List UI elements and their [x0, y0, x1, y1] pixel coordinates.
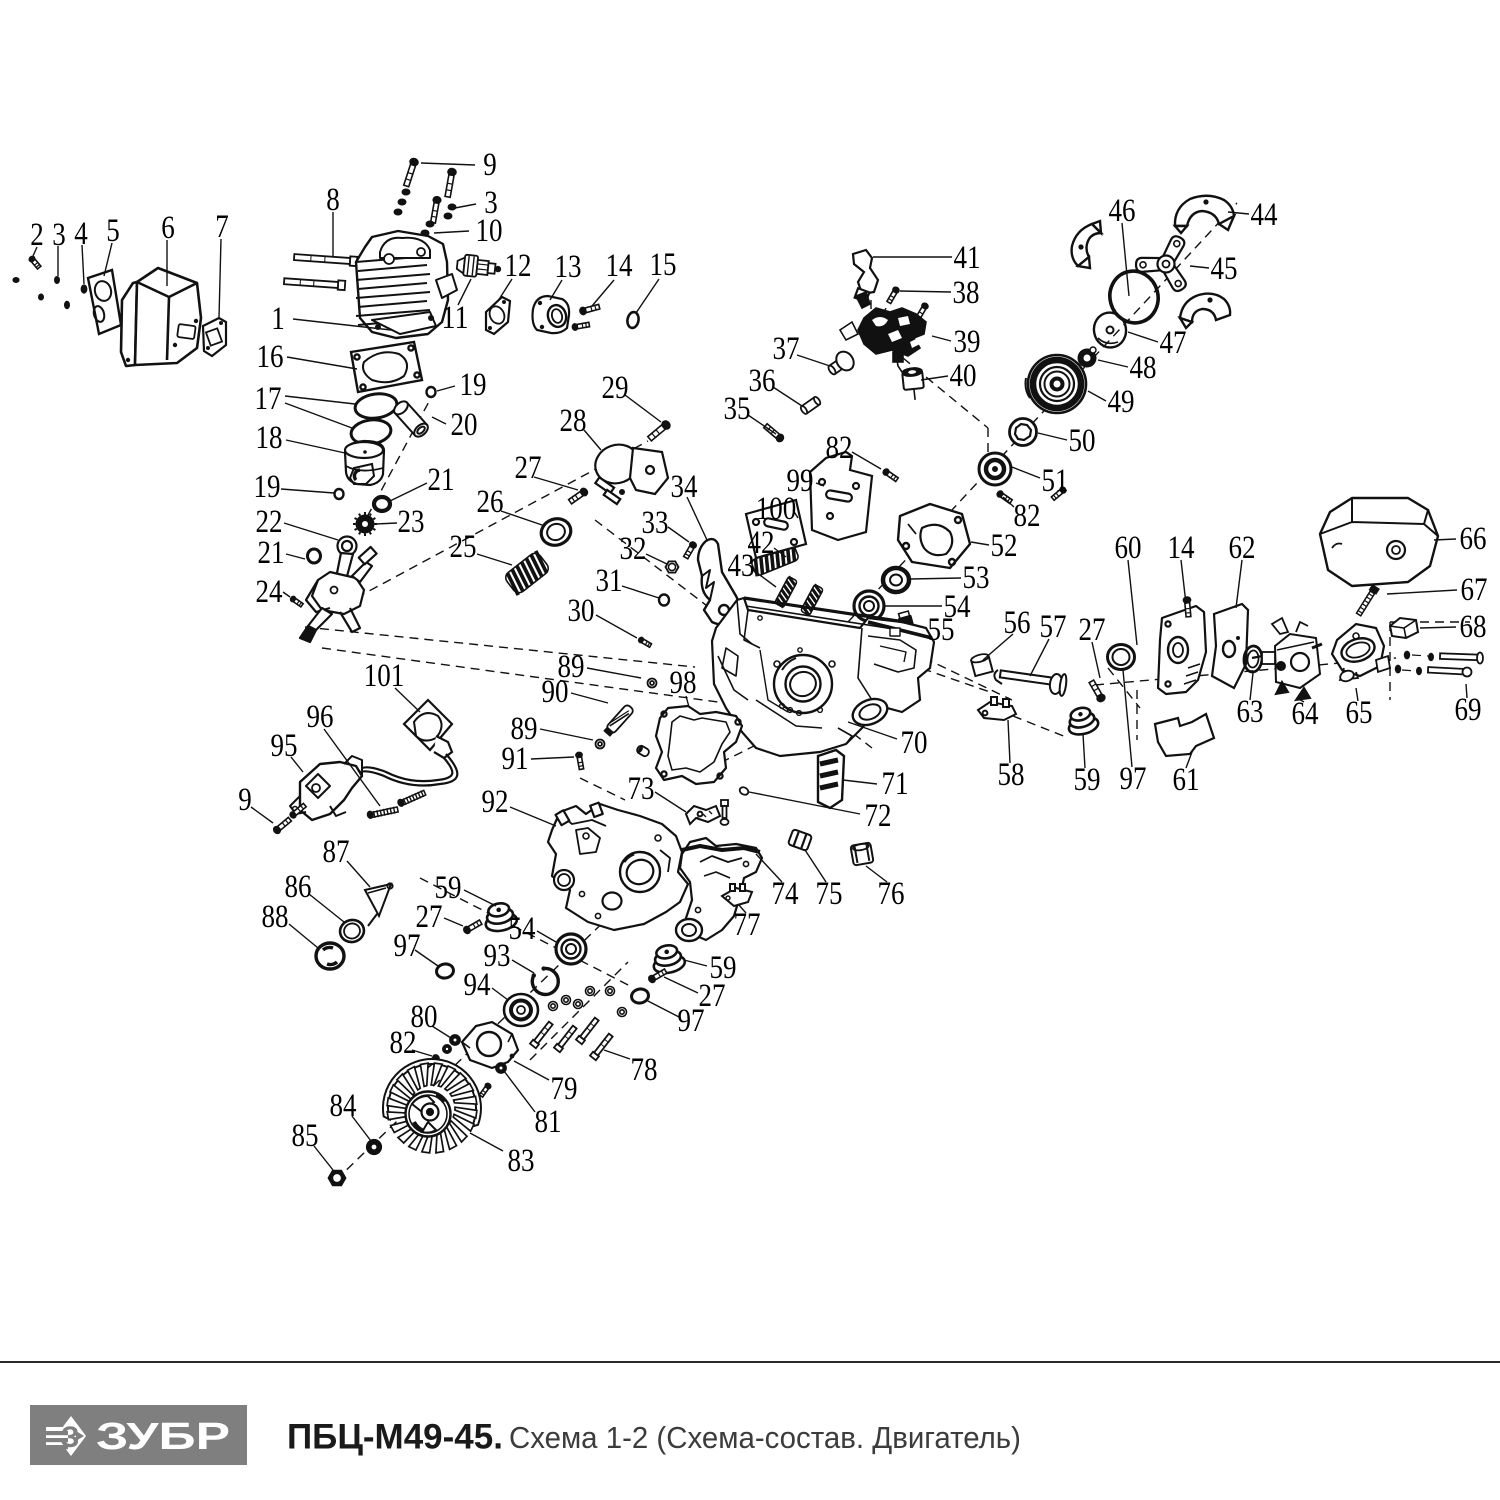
- svg-text:27: 27: [515, 450, 542, 486]
- svg-text:82: 82: [1014, 498, 1041, 534]
- svg-text:92: 92: [482, 784, 509, 820]
- svg-text:71: 71: [882, 766, 909, 802]
- svg-text:14: 14: [606, 248, 633, 284]
- svg-text:5: 5: [106, 213, 120, 249]
- svg-text:7: 7: [215, 209, 229, 245]
- svg-text:39: 39: [954, 324, 981, 360]
- svg-text:48: 48: [1130, 350, 1157, 386]
- svg-text:45: 45: [1211, 251, 1238, 287]
- svg-text:35: 35: [724, 391, 751, 427]
- svg-text:40: 40: [950, 358, 977, 394]
- svg-text:4: 4: [74, 216, 88, 252]
- svg-text:87: 87: [323, 834, 350, 870]
- svg-text:8: 8: [326, 182, 340, 218]
- svg-text:56: 56: [1004, 605, 1031, 641]
- svg-text:70: 70: [901, 725, 928, 761]
- svg-text:27: 27: [699, 978, 726, 1014]
- svg-text:60: 60: [1115, 530, 1142, 566]
- svg-text:54: 54: [509, 911, 536, 947]
- svg-text:97: 97: [1120, 761, 1147, 797]
- svg-text:88: 88: [262, 899, 289, 935]
- svg-text:19: 19: [460, 367, 487, 403]
- svg-text:69: 69: [1455, 692, 1482, 728]
- svg-text:38: 38: [953, 275, 980, 311]
- svg-text:14: 14: [1168, 530, 1195, 566]
- svg-text:77: 77: [734, 907, 761, 943]
- svg-text:12: 12: [505, 248, 532, 284]
- svg-text:31: 31: [596, 563, 623, 599]
- svg-text:65: 65: [1346, 695, 1373, 731]
- svg-text:50: 50: [1069, 423, 1096, 459]
- svg-text:33: 33: [642, 505, 669, 541]
- svg-text:49: 49: [1108, 384, 1135, 420]
- svg-text:51: 51: [1042, 463, 1069, 499]
- svg-text:23: 23: [398, 504, 425, 540]
- svg-text:1: 1: [271, 301, 285, 337]
- svg-text:15: 15: [650, 247, 677, 283]
- svg-text:27: 27: [416, 899, 443, 935]
- svg-text:68: 68: [1460, 609, 1487, 645]
- svg-text:18: 18: [256, 420, 283, 456]
- svg-text:10: 10: [476, 213, 503, 249]
- svg-text:62: 62: [1229, 530, 1256, 566]
- svg-text:74: 74: [772, 876, 799, 912]
- svg-text:ЗУБР: ЗУБР: [96, 1416, 230, 1458]
- svg-text:20: 20: [451, 407, 478, 443]
- svg-text:46: 46: [1109, 193, 1136, 229]
- svg-text:67: 67: [1461, 572, 1488, 608]
- svg-text:61: 61: [1173, 762, 1200, 798]
- svg-text:98: 98: [670, 665, 697, 701]
- svg-text:83: 83: [508, 1143, 535, 1179]
- svg-text:9: 9: [238, 782, 252, 818]
- svg-text:84: 84: [330, 1088, 357, 1124]
- svg-text:78: 78: [631, 1052, 658, 1088]
- svg-text:79: 79: [551, 1071, 578, 1107]
- svg-text:59: 59: [1074, 762, 1101, 798]
- svg-text:57: 57: [1040, 609, 1067, 645]
- svg-text:82: 82: [826, 430, 853, 466]
- svg-text:73: 73: [628, 771, 655, 807]
- svg-text:3: 3: [52, 217, 66, 253]
- svg-text:6: 6: [161, 210, 175, 246]
- svg-text:47: 47: [1160, 325, 1187, 361]
- svg-text:43: 43: [728, 548, 755, 584]
- svg-text:2: 2: [30, 217, 44, 253]
- svg-text:26: 26: [477, 484, 504, 520]
- svg-text:64: 64: [1292, 696, 1319, 732]
- svg-text:9: 9: [483, 147, 497, 183]
- svg-text:75: 75: [816, 876, 843, 912]
- svg-text:90: 90: [542, 674, 569, 710]
- svg-text:30: 30: [568, 593, 595, 629]
- svg-text:19: 19: [254, 469, 281, 505]
- svg-text:21: 21: [258, 535, 285, 571]
- svg-text:72: 72: [865, 798, 892, 834]
- svg-text:76: 76: [878, 876, 905, 912]
- svg-text:55: 55: [928, 612, 955, 648]
- svg-text:11: 11: [442, 300, 469, 336]
- svg-text:21: 21: [428, 462, 455, 498]
- svg-text:94: 94: [464, 967, 491, 1003]
- svg-text:44: 44: [1251, 197, 1278, 233]
- svg-text:81: 81: [535, 1104, 562, 1140]
- svg-text:34: 34: [671, 469, 698, 505]
- svg-text:58: 58: [998, 757, 1025, 793]
- svg-text:13: 13: [555, 249, 582, 285]
- svg-text:28: 28: [560, 403, 587, 439]
- svg-text:100: 100: [756, 491, 797, 527]
- svg-text:29: 29: [602, 370, 629, 406]
- svg-text:17: 17: [255, 381, 282, 417]
- svg-text:37: 37: [773, 331, 800, 367]
- svg-text:66: 66: [1460, 521, 1487, 557]
- svg-text:27: 27: [1079, 612, 1106, 648]
- svg-text:16: 16: [257, 339, 284, 375]
- svg-text:95: 95: [271, 728, 298, 764]
- svg-text:82: 82: [390, 1025, 417, 1061]
- svg-text:101: 101: [364, 658, 405, 694]
- svg-text:36: 36: [749, 363, 776, 399]
- svg-text:41: 41: [954, 240, 981, 276]
- svg-text:96: 96: [307, 699, 334, 735]
- svg-text:ПБЦ-М49-45.Схема 1-2 (Схема-со: ПБЦ-М49-45.Схема 1-2 (Схема-состав. Двиг…: [287, 1418, 1021, 1457]
- svg-text:91: 91: [502, 741, 529, 777]
- svg-text:63: 63: [1237, 694, 1264, 730]
- svg-text:24: 24: [256, 574, 283, 610]
- svg-text:86: 86: [285, 869, 312, 905]
- svg-text:85: 85: [292, 1118, 319, 1154]
- svg-text:25: 25: [450, 529, 477, 565]
